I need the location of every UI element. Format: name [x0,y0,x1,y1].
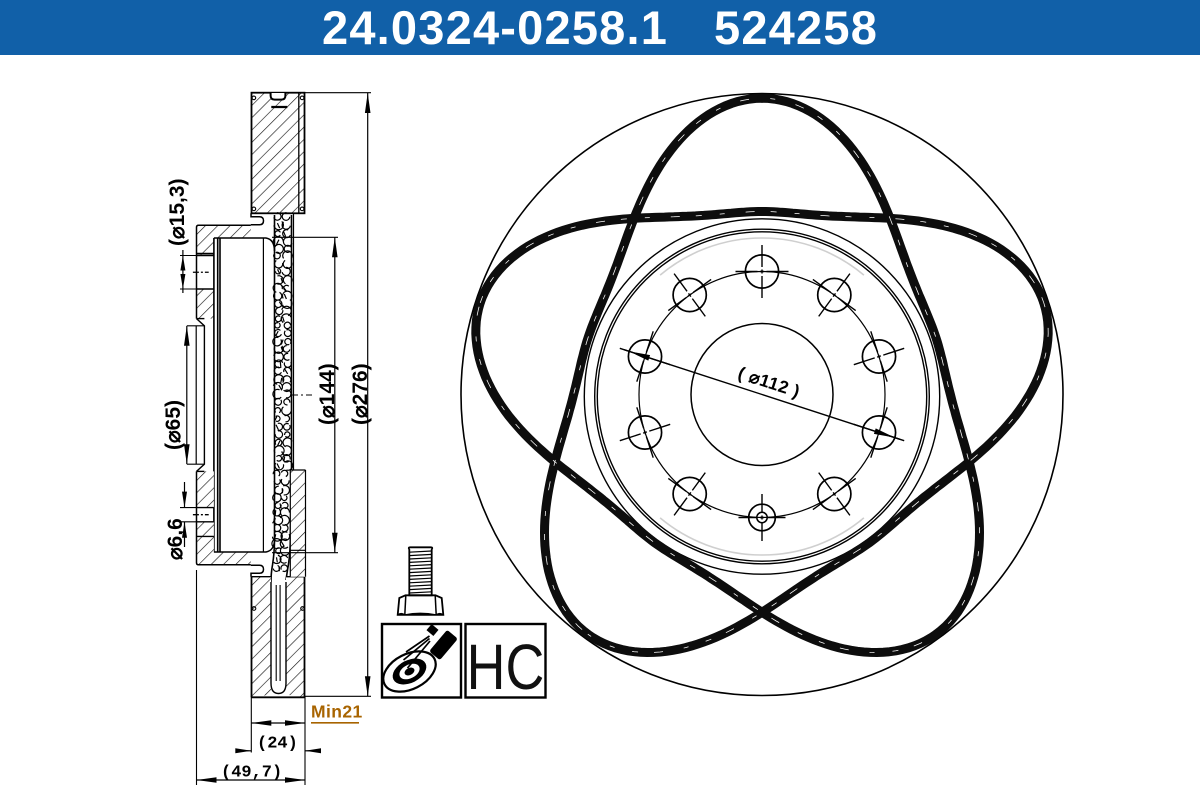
svg-text:HC: HC [467,631,545,704]
svg-text:(⌀276): (⌀276) [349,363,372,425]
svg-text:(⌀144): (⌀144) [316,363,339,425]
svg-text:(⌀65): (⌀65) [162,400,185,450]
svg-text:(49,7): (49,7) [221,763,282,782]
svg-text:(⌀15,3): (⌀15,3) [166,178,189,246]
svg-text:⌀6,6: ⌀6,6 [164,518,187,560]
svg-text:24.0324-0258.1: 24.0324-0258.1 [322,1,668,54]
svg-text:524258: 524258 [714,1,878,54]
svg-text:Min21: Min21 [311,702,363,722]
svg-text:(24): (24) [257,735,298,754]
